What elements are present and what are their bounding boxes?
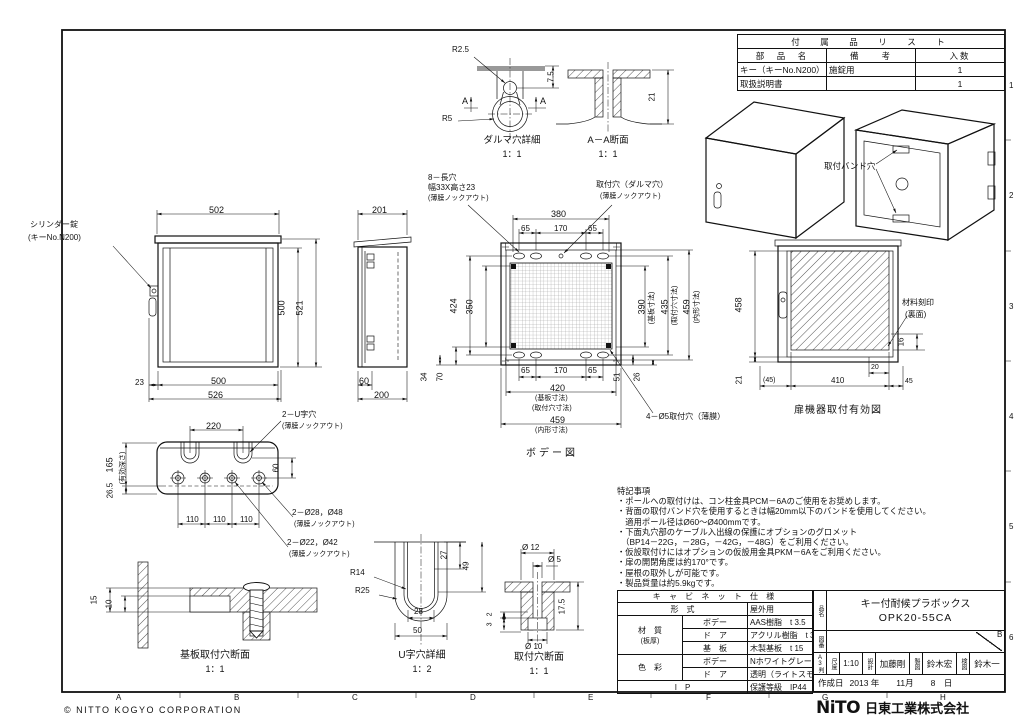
dim-hole-phi12: Ø 12 [522, 544, 539, 552]
dim-side-bottom-depth: 200 [374, 391, 389, 400]
dim-body-top-65a: 65 [521, 225, 530, 233]
special-notes: 特記事項 ・ポールへの取付けは、コン柱金具PCM－6Aのご使用をお奨めします。 … [617, 486, 951, 588]
grid-letter: F [706, 693, 711, 702]
accessories-col-qty: 入数 [916, 49, 1005, 63]
callout-phi5-holes: 4－Ø5取付穴（薄膜） [646, 413, 725, 421]
accessories-row: キー（キーNo.N200） 施錠用 1 [738, 63, 1005, 77]
dim-side-depth: 201 [372, 206, 387, 215]
dim-kiban-10: 10 [106, 599, 114, 608]
dim-door-20: 20 [871, 364, 879, 371]
dim-u-r25: R25 [355, 587, 370, 595]
dim-front-door-height: 500 [278, 300, 287, 315]
callout-u-holes-line2: (薄膜ノックアウト) [282, 423, 343, 430]
callout-u-holes-line1: 2－U字穴 [282, 411, 316, 419]
title-block-label-hinmei: 品名 [814, 591, 827, 631]
dim-body-420-note2: (取付穴寸法) [532, 405, 572, 412]
note-line: ・ポールへの取付けは、コン柱金具PCM－6Aのご使用をお奨めします。 [617, 496, 951, 506]
spec-body-value: AAS樹脂 t 3.5 [748, 616, 813, 629]
note-line: （BP14－22G，－28G，－42G，－48G）をご利用ください。 [617, 537, 951, 547]
dim-bottom-165-note: (有効深さ) [120, 452, 127, 485]
grid-number: 5 [1009, 522, 1013, 531]
section-mark-a1: A [462, 97, 468, 106]
accessories-col-note: 備 考 [827, 49, 916, 63]
view-scale-aa-section: 1：1 [568, 150, 648, 159]
design-label: 設計 [863, 653, 876, 674]
dim-hole-2: 2 [487, 612, 494, 616]
dim-bottom-110a: 110 [186, 516, 199, 524]
grid-letter: H [940, 693, 946, 702]
view-scale-u-detail: 1：2 [376, 665, 468, 674]
dim-body-459-right-note: (内形寸法) [694, 291, 701, 324]
note-line: ・仮設取付けにはオプションの仮設用金具PKM－6Aをご利用ください。 [617, 547, 951, 557]
date-row: 作成日 2013 年 11月 8 日 [814, 675, 1004, 691]
grid-letter: E [588, 693, 593, 702]
accessories-title: 付 属 品 リ ス ト [738, 35, 1005, 49]
view-title-body: ボデー図 [512, 449, 592, 460]
scale-label: 尺度 [827, 653, 840, 674]
dim-u-27: 27 [441, 550, 449, 559]
title-block: 品名 図番 A3判 キー付耐候プラボックス OPK20-55CA 尺度 1:10… [813, 590, 1005, 692]
dim-door-410: 410 [831, 377, 844, 385]
bottom-view-drawing [122, 421, 296, 547]
spec-title: キ ャ ビ ネ ッ ト 仕 様 [618, 591, 813, 603]
u-hole-detail-drawing [374, 534, 486, 646]
dim-body-380: 380 [551, 210, 566, 219]
dim-body-bot-170: 170 [554, 367, 567, 375]
cabinet-spec-table: キ ャ ビ ネ ッ ト 仕 様 形 式 屋外用 材 質 (板厚) ボデー AAS… [617, 590, 813, 694]
callout-key-no: (キーNo.N200) [28, 234, 81, 242]
dim-body-70: 70 [437, 372, 445, 381]
callout-material-stamp-side: (裏面) [905, 311, 926, 319]
grid-number: 4 [1009, 412, 1013, 421]
accessory-note: 施錠用 [827, 63, 916, 77]
accessory-qty: 1 [916, 77, 1005, 91]
dim-bottom-110b: 110 [213, 516, 226, 524]
dim-bottom-110c: 110 [240, 516, 253, 524]
notes-title: 特記事項 [617, 486, 951, 496]
grid-number: 6 [1009, 633, 1013, 642]
dim-body-34: 34 [421, 372, 429, 381]
dim-front-total-width: 526 [208, 391, 223, 400]
dim-u-28: 28 [414, 608, 423, 616]
dim-hole-phi10: Ø 10 [525, 643, 542, 651]
dim-bottom-26-5: 26.5 [107, 483, 115, 499]
accessory-note [827, 77, 916, 91]
check-value: 鈴木一 [970, 653, 1004, 674]
note-line: ・製品質量は約5.9kgです。 [617, 578, 951, 588]
dim-body-bot-65b: 65 [588, 367, 597, 375]
dim-bottom-220: 220 [206, 422, 221, 431]
spec-material-label-sub: (板厚) [620, 636, 680, 646]
copyright-text: © NITTO KOGYO CORPORATION [64, 705, 242, 715]
spec-door-label: ド ア [683, 629, 748, 642]
view-title-hole-section: 取付穴断面 [494, 653, 584, 664]
spec-material-label-main: 材 質 [620, 625, 680, 636]
dim-front-total-height: 521 [296, 300, 305, 315]
title-block-label-zuban: 図番 [814, 631, 827, 653]
callout-slot-line3: (薄膜ノックアウト) [428, 195, 489, 202]
dim-bottom-165: 165 [106, 457, 115, 472]
section-mark-a2: A [540, 97, 546, 106]
spec-type-label: 形 式 [618, 603, 748, 616]
front-view-drawing [113, 210, 322, 402]
dim-u-50: 50 [413, 627, 422, 635]
callout-phi28-line1: 2－Ø28，Ø48 [292, 509, 343, 517]
spec-board-label: 基 板 [683, 642, 748, 655]
dim-u-r14: R14 [350, 569, 365, 577]
accessories-row: 取扱説明書 1 [738, 77, 1005, 91]
draft-value: 鈴木宏 [923, 653, 957, 674]
dim-body-435-note: (取付穴寸法) [672, 286, 679, 326]
accessories-col-part: 部 品 名 [738, 49, 827, 63]
dim-door-21: 21 [736, 375, 744, 384]
dim-front-lock-offset: 23 [135, 379, 144, 387]
dim-u-49: 49 [463, 561, 471, 570]
spec-board-value: 木製基板 t 15 [748, 642, 813, 655]
spec-type-value: 屋外用 [748, 603, 813, 616]
product-model: OPK20-55CA [827, 612, 1004, 624]
dim-body-51: 51 [614, 372, 622, 381]
callout-phi22-line1: 2－Ø22，Ø42 [287, 539, 338, 547]
company-logo: NiTO 日東工業株式会社 [816, 698, 969, 718]
check-label: 検図 [957, 653, 970, 674]
spec-color-door-label: ド ア [683, 668, 748, 681]
grid-number: 1 [1009, 81, 1013, 90]
approval-row: 尺度 1:10 設計 加藤剛 製図 鈴木宏 検図 鈴木一 [827, 653, 1004, 675]
grid-letter: A [116, 693, 121, 702]
spec-ip-value: 保護等級 IP44 [748, 681, 813, 694]
dim-bottom-60: 60 [273, 463, 281, 472]
view-scale-daruma: 1：1 [470, 150, 554, 159]
drawing-sheet: R2.5 A A 7.5 R5 ダルマ穴詳細 1：1 21 A－A断面 1：1 … [0, 0, 1024, 724]
date-value: 2013 年 11月 8 日 [850, 677, 953, 689]
accessory-qty: 1 [916, 63, 1005, 77]
note-line: ・屋根の取外しが可能です。 [617, 568, 951, 578]
dim-body-435: 435 [661, 299, 670, 314]
view-title-aa-section: A－A断面 [568, 136, 648, 146]
grid-letter: C [352, 693, 358, 702]
callout-slot-line1: 8－長穴 [428, 174, 456, 182]
dim-front-body-width: 500 [211, 377, 226, 386]
view-title-u-detail: U字穴詳細 [376, 651, 468, 662]
callout-band-hole: 取付バンド穴 [824, 162, 875, 171]
spec-color-body-value: Nホワイトグレー色 (N8.5) [748, 655, 813, 668]
date-label: 作成日 [818, 677, 844, 689]
drawing-number-cell [827, 631, 1004, 653]
dim-front-roof-width: 502 [209, 206, 224, 215]
callout-daruma-line1: 取付穴（ダルマ穴） [596, 181, 668, 189]
dim-body-top-170: 170 [554, 225, 567, 233]
dim-body-390-note: (基板寸法) [649, 292, 656, 325]
spec-color-body-label: ボデー [683, 655, 748, 668]
dim-side-door-depth: 60 [359, 377, 369, 386]
dim-body-top-65b: 65 [588, 225, 597, 233]
grid-number: 2 [1009, 191, 1013, 200]
side-view-drawing [354, 210, 411, 402]
dim-body-424: 424 [450, 298, 459, 313]
dim-aa-height: 21 [649, 92, 657, 101]
dim-door-16: 16 [898, 337, 906, 346]
grid-letter: D [470, 693, 476, 702]
spec-door-value: アクリル樹脂 t 3.5 [748, 629, 813, 642]
scale-value: 1:10 [840, 653, 863, 674]
view-scale-kiban: 1：1 [165, 665, 265, 674]
callout-phi28-line2: (薄膜ノックアウト) [294, 521, 355, 528]
design-value: 加藤剛 [876, 653, 910, 674]
note-line: ・背面の取付バンド穴を使用するときは幅20mm以下のバンドを使用してください。 [617, 506, 951, 516]
dim-body-390: 390 [638, 299, 647, 314]
iso-back-view-drawing [856, 110, 995, 240]
dim-hole-17-5: 17.5 [559, 599, 567, 615]
dim-body-bot-65a: 65 [521, 367, 530, 375]
grid-letter: G [822, 693, 828, 702]
dim-body-420: 420 [550, 384, 565, 393]
dim-body-26: 26 [634, 372, 642, 381]
spec-color-door-value: 透明（ライトスモーク色） [748, 668, 813, 681]
dim-daruma-r-large: R5 [442, 115, 452, 123]
dim-hole-3: 3 [487, 622, 494, 626]
callout-daruma-line2: (薄膜ノックアウト) [600, 193, 661, 200]
accessories-table: 付 属 品 リ ス ト 部 品 名 備 考 入数 キー（キーNo.N200） 施… [737, 34, 1005, 91]
title-block-label-a3: A3判 [814, 653, 827, 675]
dim-body-459-right: 459 [683, 299, 692, 314]
callout-material-stamp: 材料刻印 [902, 299, 934, 307]
view-scale-hole-section: 1：1 [494, 667, 584, 676]
company-name: 日東工業株式会社 [865, 698, 969, 717]
door-view-drawing [749, 240, 925, 390]
spec-color-label: 色 彩 [618, 655, 683, 681]
accessory-part: 取扱説明書 [738, 77, 827, 91]
dim-door-458: 458 [735, 297, 744, 312]
dim-daruma-r-small: R2.5 [452, 46, 469, 54]
dim-door-45: 45 [905, 378, 913, 385]
dim-body-350: 350 [466, 299, 475, 314]
note-line: 適用ポール径はØ60～Ø400mmです。 [617, 517, 951, 527]
spec-body-label: ボデー [683, 616, 748, 629]
kiban-section-drawing [106, 562, 317, 648]
grid-number: 3 [1009, 302, 1013, 311]
dim-body-459-bottom: 459 [550, 416, 565, 425]
product-name-cell: キー付耐候プラボックス OPK20-55CA [827, 591, 1004, 631]
callout-phi22-line2: (薄膜ノックアウト) [289, 551, 350, 558]
draft-label: 製図 [910, 653, 923, 674]
note-line: ・扉の開閉角度は約170°です。 [617, 557, 951, 567]
spec-ip-label: I P [618, 681, 748, 694]
dim-door-45p: (45) [763, 377, 775, 384]
dim-body-459-bottom-note: (内形寸法) [535, 427, 568, 434]
view-title-daruma: ダルマ穴詳細 [470, 136, 554, 146]
dim-hole-phi5: Ø 5 [548, 556, 561, 564]
dim-body-420-note1: (基板寸法) [535, 395, 568, 402]
revision-mark: B [997, 630, 1002, 639]
spec-material-label: 材 質 (板厚) [618, 616, 683, 655]
dim-daruma-depth: 7.5 [548, 71, 556, 82]
callout-slot-line2: 幅33X高さ23 [428, 184, 475, 192]
grid-letter: B [234, 693, 239, 702]
note-line: ・下面丸穴部のケーブル入出線の保護にオプションのグロメット [617, 527, 951, 537]
dim-kiban-15: 15 [91, 595, 99, 604]
view-title-door: 扉機器取付有効図 [775, 406, 901, 417]
callout-cylinder-lock: シリンダー錠 [30, 221, 78, 229]
accessory-part: キー（キーNo.N200） [738, 63, 827, 77]
view-title-kiban: 基板取付穴断面 [165, 651, 265, 662]
mount-hole-section-drawing [500, 549, 584, 645]
product-name: キー付耐候プラボックス [827, 595, 1004, 610]
